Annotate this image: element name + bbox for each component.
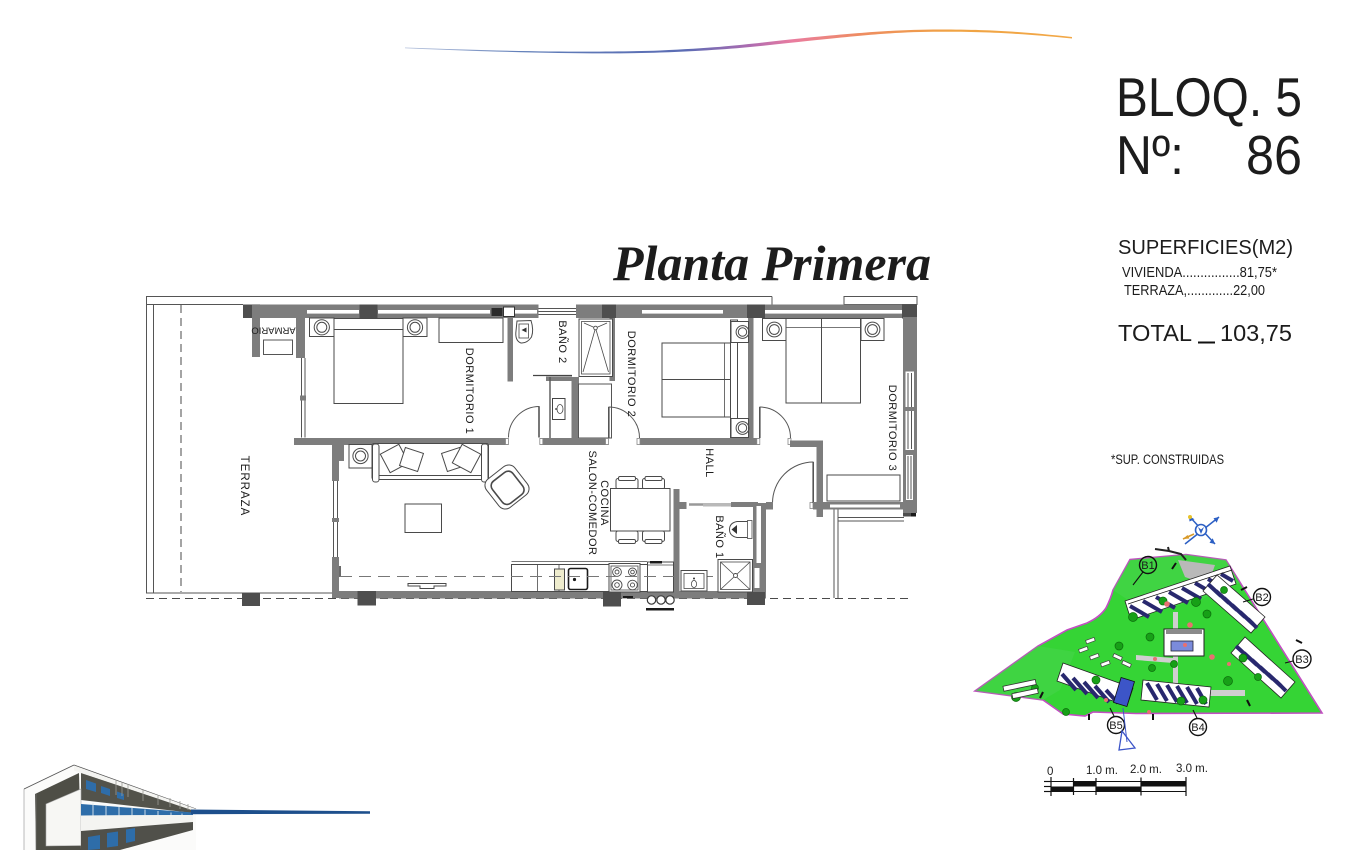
svg-text:VIVIENDA................81,75*: VIVIENDA................81,75* <box>1122 265 1277 281</box>
svg-text:DORMITORIO 1: DORMITORIO 1 <box>463 348 475 434</box>
svg-text:TERRAZA: TERRAZA <box>238 456 250 517</box>
svg-text:B2: B2 <box>1255 592 1268 604</box>
svg-text:86: 86 <box>1246 124 1302 186</box>
svg-text:B1: B1 <box>1141 560 1154 572</box>
svg-text:DORMITORIO 2: DORMITORIO 2 <box>625 331 637 417</box>
svg-text:2.0 m.: 2.0 m. <box>1130 764 1162 776</box>
svg-text:SALON-COMEDOR: SALON-COMEDOR <box>586 451 598 556</box>
svg-text:B5: B5 <box>1109 720 1122 732</box>
svg-text:1.0 m.: 1.0 m. <box>1086 765 1118 777</box>
svg-text:B4: B4 <box>1191 722 1204 734</box>
svg-text:DORMITORIO 3: DORMITORIO 3 <box>886 385 898 471</box>
svg-text:103,75: 103,75 <box>1220 320 1292 346</box>
svg-text:HALL: HALL <box>703 448 715 478</box>
svg-text:BAÑO 1: BAÑO 1 <box>713 515 726 558</box>
svg-text:SUPERFICIES(M2): SUPERFICIES(M2) <box>1118 237 1293 259</box>
svg-text:0: 0 <box>1047 766 1053 778</box>
svg-text:COCINA: COCINA <box>598 480 610 526</box>
svg-text:TERRAZA,.............22,00: TERRAZA,.............22,00 <box>1124 283 1265 299</box>
svg-text:3.0 m.: 3.0 m. <box>1176 763 1208 775</box>
svg-text:TOTAL: TOTAL <box>1118 320 1192 346</box>
svg-text:Nº:: Nº: <box>1116 124 1184 186</box>
svg-text:BLOQ. 5: BLOQ. 5 <box>1116 66 1302 128</box>
svg-text:*SUP. CONSTRUIDAS: *SUP. CONSTRUIDAS <box>1111 452 1224 467</box>
svg-text:BAÑO 2: BAÑO 2 <box>556 320 569 363</box>
svg-text:Planta Primera: Planta Primera <box>612 235 931 291</box>
svg-text:ARMARIO: ARMARIO <box>251 325 295 336</box>
svg-text:B3: B3 <box>1295 654 1308 666</box>
